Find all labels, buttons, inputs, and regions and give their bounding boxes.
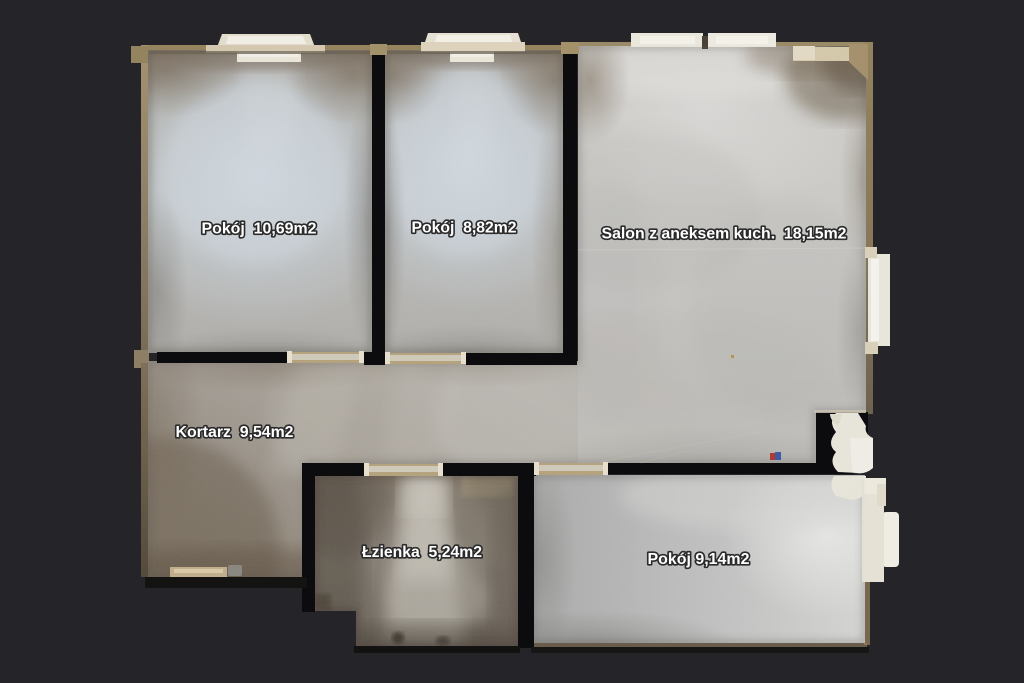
svg-text:Pokój 8,82m2: Pokój 8,82m2 <box>412 220 517 237</box>
svg-text:Kortarz 9,54m2: Kortarz 9,54m2 <box>176 424 294 441</box>
svg-text:Pokój 10,69m2: Pokój 10,69m2 <box>202 221 317 238</box>
svg-text:Pokój 9,14m2: Pokój 9,14m2 <box>648 551 750 568</box>
svg-text:Łzienka 5,24m2: Łzienka 5,24m2 <box>362 544 482 561</box>
svg-text:Salon z aneksem kuch. 18,15m2: Salon z aneksem kuch. 18,15m2 <box>602 226 847 243</box>
